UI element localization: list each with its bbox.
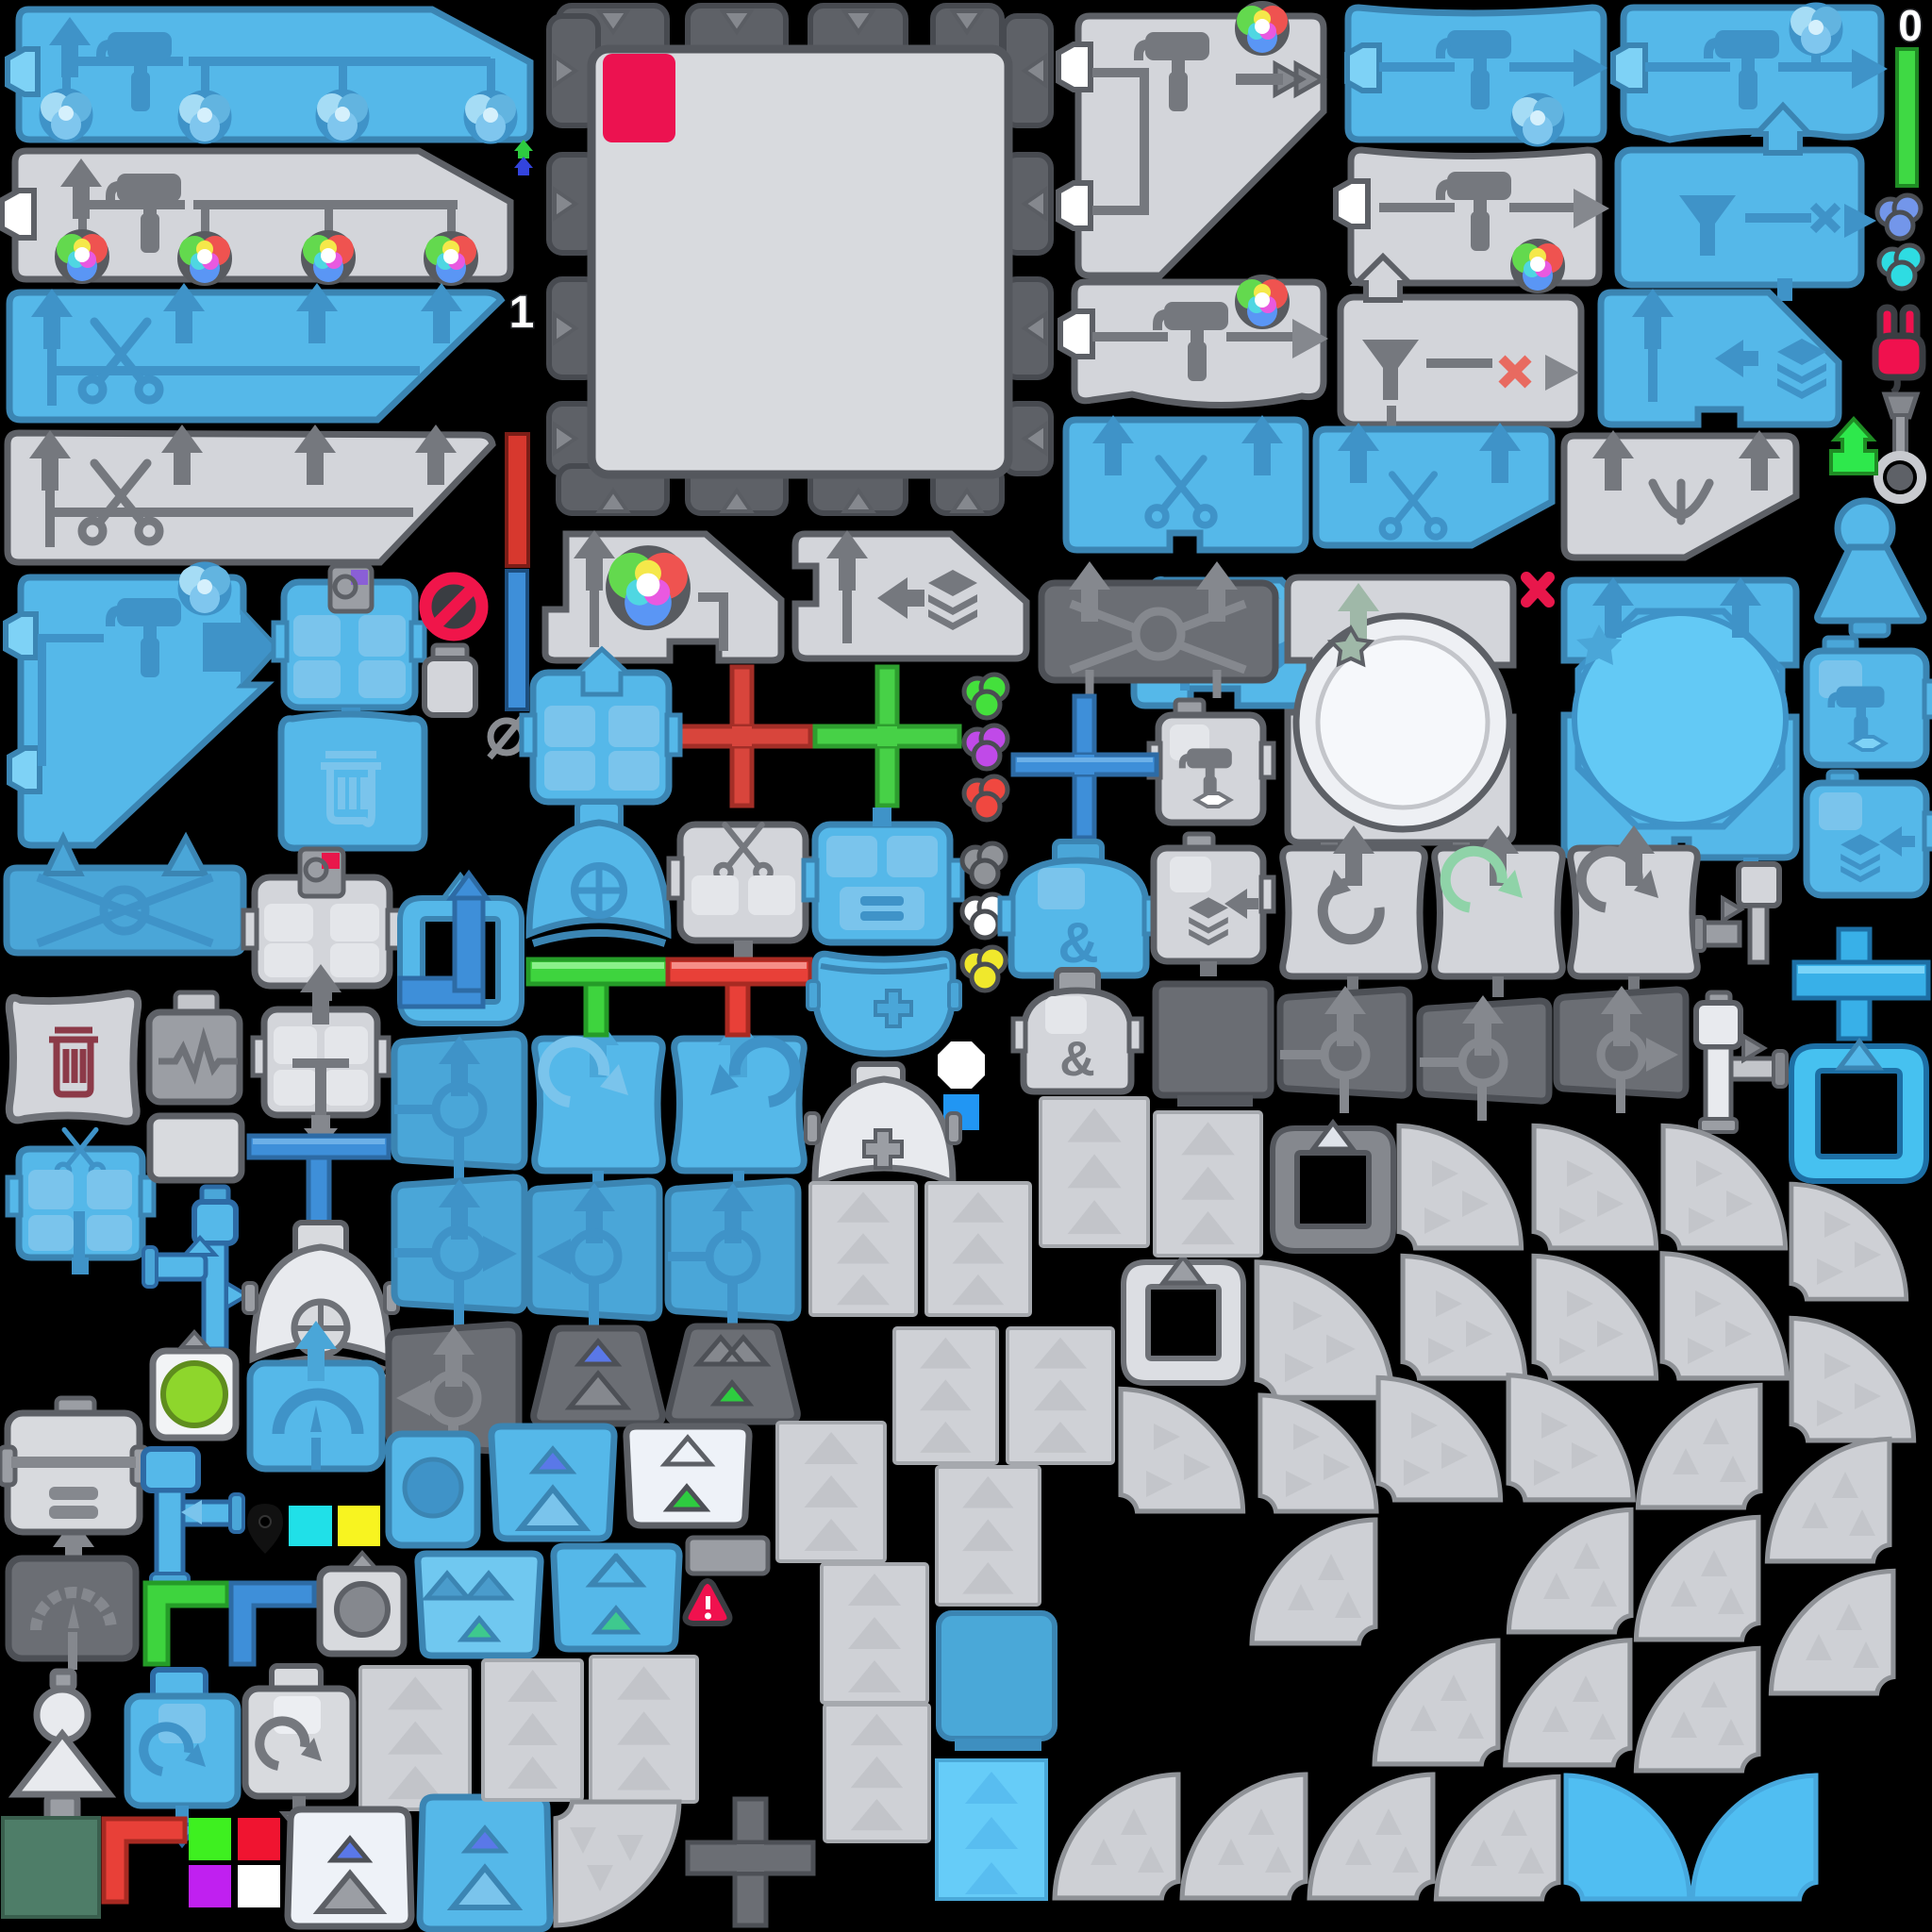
svg-text:1: 1 bbox=[509, 288, 535, 338]
svg-text:&: & bbox=[1059, 1032, 1095, 1087]
svg-text:&: & bbox=[1058, 911, 1098, 974]
svg-text:0: 0 bbox=[1898, 1, 1923, 50]
